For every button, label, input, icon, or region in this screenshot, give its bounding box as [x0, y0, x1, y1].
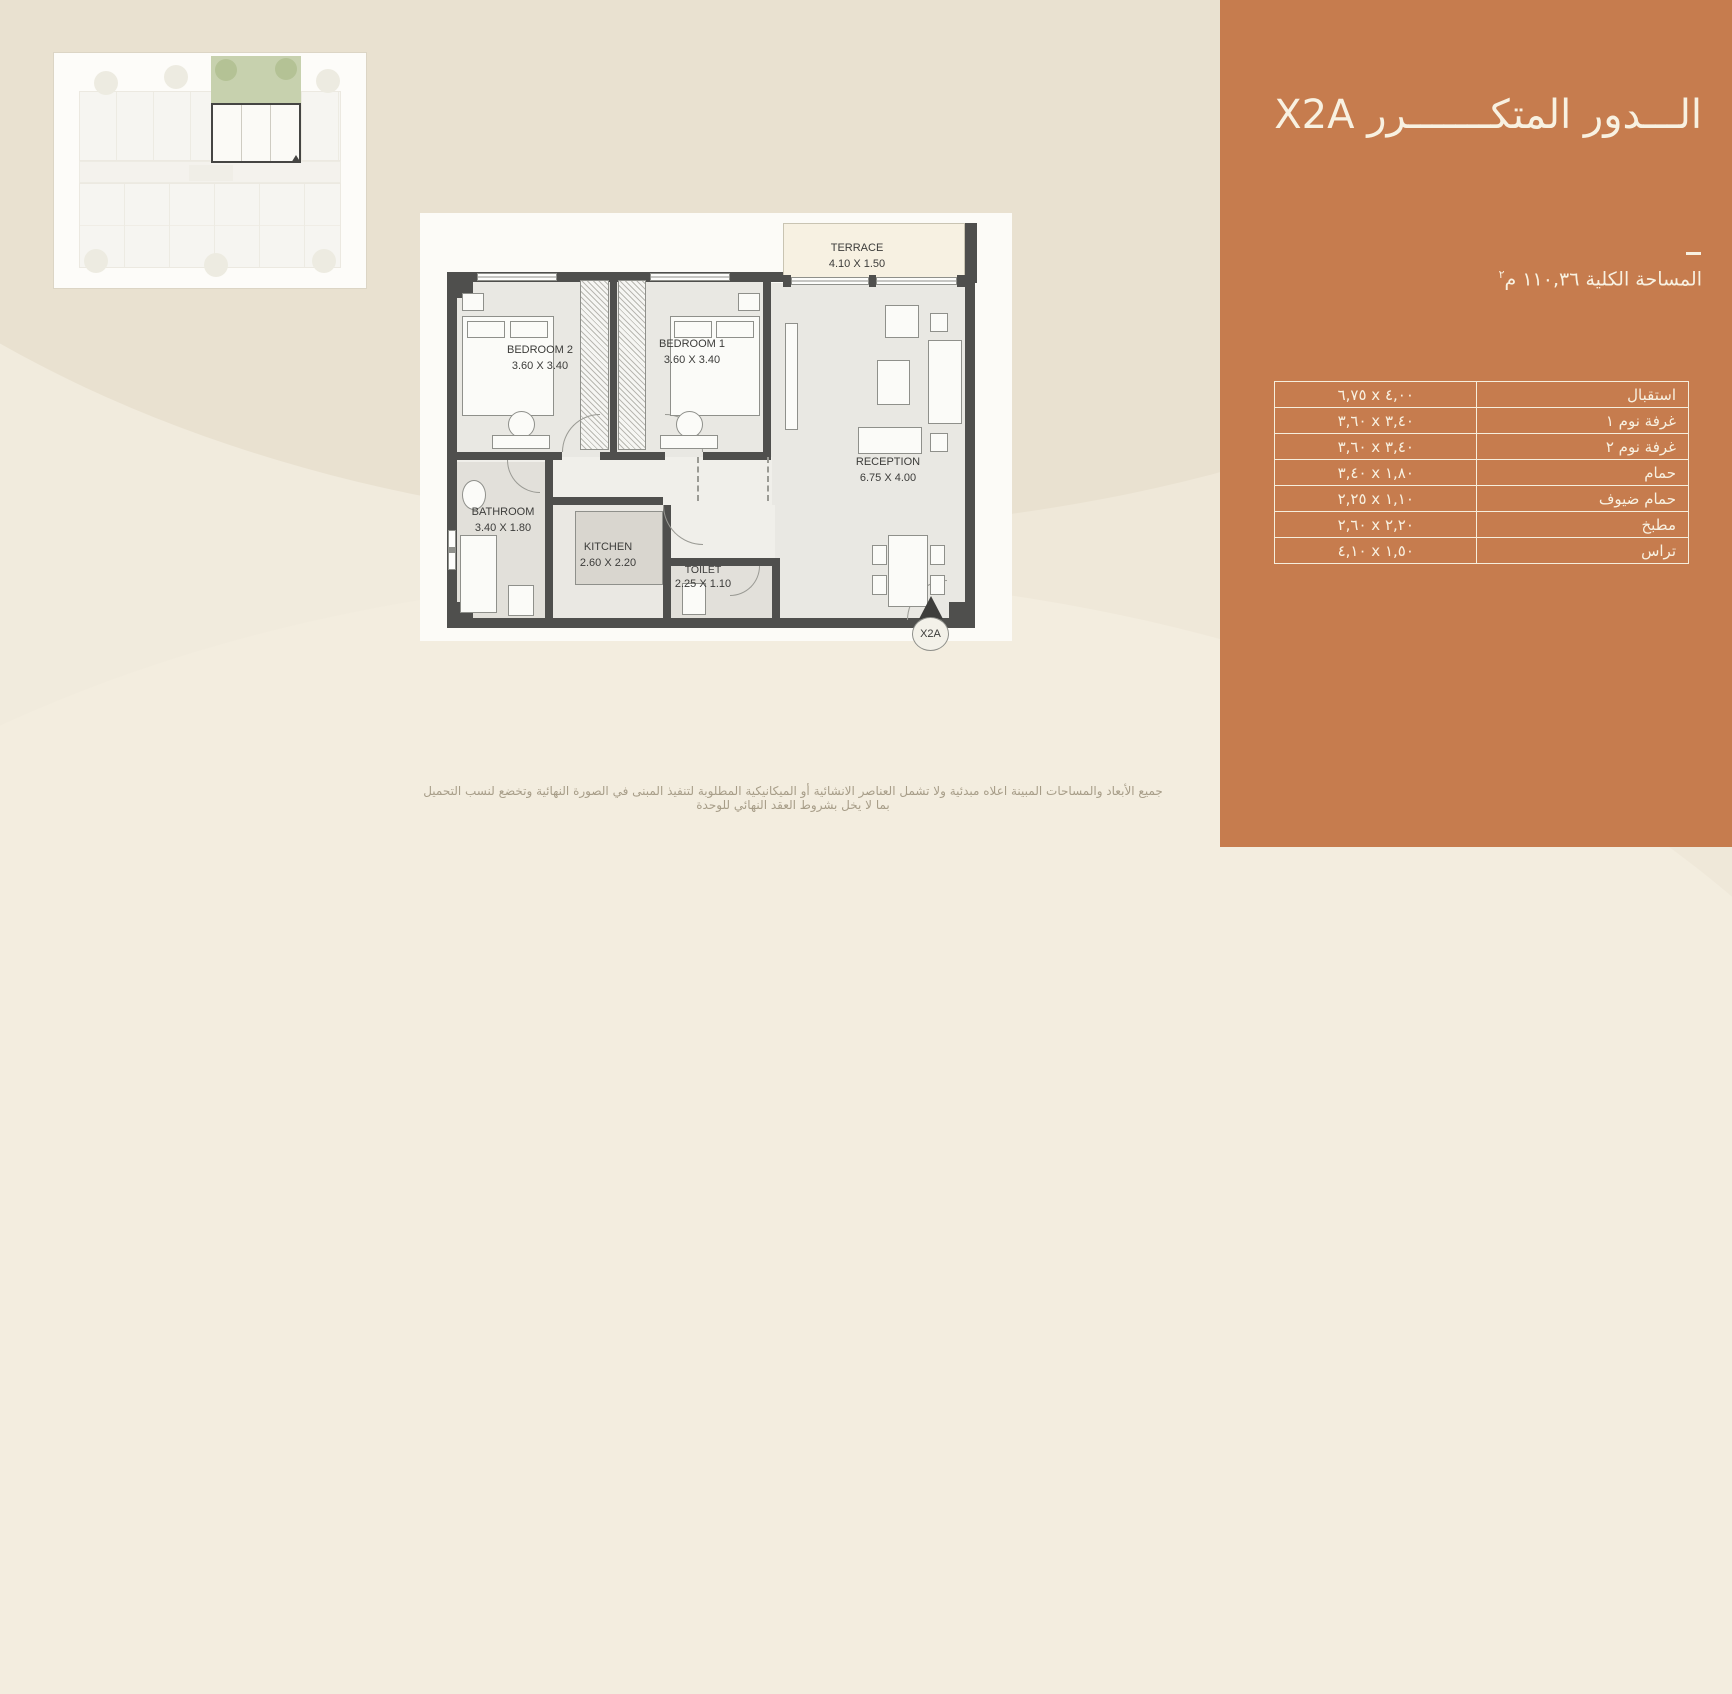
floorplan: TERRACE 4.10 X 1.50 BEDROOM 2 3.60 X 3.4… [420, 213, 1012, 641]
room-name: TERRACE [831, 242, 884, 254]
wall [703, 452, 771, 460]
pillow [716, 321, 754, 338]
room-dims-cell: ٣,٤٠ x ١,٨٠ [1275, 460, 1477, 486]
info-panel: الـــدور المتكـــــــرر X2A المساحة الكل… [1220, 0, 1732, 847]
wall [447, 272, 457, 628]
side-table [930, 313, 948, 332]
wall [447, 618, 975, 628]
window [791, 277, 869, 285]
room-name-cell: مطبخ [1477, 512, 1689, 538]
tree-icon [94, 71, 118, 95]
room-name-cell: حمام [1477, 460, 1689, 486]
tv-unit [785, 323, 798, 430]
wall [869, 275, 876, 287]
room-name-cell: تراس [1477, 538, 1689, 564]
side-table [930, 433, 948, 452]
room-dims-cell: ٣,٦٠ x ٣,٤٠ [1275, 434, 1477, 460]
bathtub [460, 535, 497, 613]
pillow [510, 321, 548, 338]
keyplan-highlight-unit [211, 103, 301, 163]
dining-chair [930, 575, 945, 595]
total-area-unit: م [1505, 268, 1517, 290]
entrance-marker-icon [919, 596, 943, 619]
keyplan-stair-core [189, 165, 233, 181]
wall-corner [949, 602, 975, 628]
wall [447, 452, 562, 460]
wall [957, 275, 965, 287]
nightstand [462, 293, 484, 311]
keyplan-faded-building [54, 53, 366, 288]
wall [763, 272, 771, 460]
desk [492, 435, 550, 449]
table-row: مطبخ ٢,٦٠ x ٢,٢٠ [1275, 512, 1689, 538]
room-dims: 2.60 X 2.20 [580, 557, 636, 569]
wall [610, 272, 617, 460]
wall [545, 460, 553, 618]
total-area-text: المساحة الكلية ١١٠,٣٦ م٢ [1499, 268, 1702, 290]
tree-icon [275, 58, 297, 80]
opening-dashed [697, 457, 699, 501]
room-name-cell: استقبال [1477, 382, 1689, 408]
tree-icon [316, 69, 340, 93]
pillow [467, 321, 505, 338]
room-label-reception: RECEPTION 6.75 X 4.00 [828, 455, 948, 487]
room-dims: 3.60 X 3.40 [664, 354, 720, 366]
nightstand [738, 293, 760, 311]
wall [965, 283, 975, 628]
keyplan-thumbnail [53, 52, 367, 289]
window [876, 277, 957, 285]
wall [553, 497, 663, 505]
dining-chair [872, 575, 887, 595]
window [650, 273, 730, 281]
table-row: حمام ٣,٤٠ x ١,٨٠ [1275, 460, 1689, 486]
table-row: غرفة نوم ٢ ٣,٦٠ x ٣,٤٠ [1275, 434, 1689, 460]
toilet-wc [508, 585, 534, 616]
total-area-value: ١١٠,٣٦ [1522, 268, 1579, 290]
room-dims: 2.25 X 1.10 [675, 578, 731, 590]
room-name: RECEPTION [856, 456, 920, 468]
room-name-cell: غرفة نوم ٢ [1477, 434, 1689, 460]
coffee-table [877, 360, 910, 405]
page-title: الـــدور المتكـــــــرر X2A [1240, 92, 1702, 138]
title-divider [1686, 252, 1701, 255]
keyplan-highlight-garden [211, 56, 301, 103]
room-name: BATHROOM [472, 506, 535, 518]
keyplan-unit-entrance-marker [291, 155, 301, 163]
armchair [885, 305, 919, 338]
tree-icon [204, 253, 228, 277]
room-dims-cell: ٤,١٠ x ١,٥٠ [1275, 538, 1477, 564]
room-name-cell: حمام ضيوف [1477, 486, 1689, 512]
room-dims-cell: ٣,٦٠ x ٣,٤٠ [1275, 408, 1477, 434]
window [477, 273, 557, 281]
room-label-bedroom1: BEDROOM 1 3.60 X 3.40 [632, 337, 752, 369]
brochure-page: { "panel": { "title_ar": "الـــدور المتك… [0, 0, 1732, 847]
room-dims: 3.40 X 1.80 [475, 522, 531, 534]
room-name: TOILET [685, 564, 722, 576]
room-label-bedroom2: BEDROOM 2 3.60 X 3.40 [480, 343, 600, 375]
room-dims-cell: ٦,٧٥ x ٤,٠٠ [1275, 382, 1477, 408]
opening-dashed [767, 457, 769, 501]
wall [772, 558, 780, 618]
table-row: تراس ٤,١٠ x ١,٥٠ [1275, 538, 1689, 564]
wall [783, 275, 791, 287]
room-name: BEDROOM 2 [507, 344, 573, 356]
desk [660, 435, 718, 449]
page-title-arabic: الـــدور المتكـــــــرر [1367, 92, 1702, 138]
tree-icon [312, 249, 336, 273]
keyplan-top-units [79, 91, 341, 161]
room-dims: 4.10 X 1.50 [829, 258, 885, 270]
sofa [928, 340, 962, 424]
table-row: استقبال ٦,٧٥ x ٤,٠٠ [1275, 382, 1689, 408]
chair [676, 411, 703, 438]
tree-icon [215, 59, 237, 81]
room-label-bathroom: BATHROOM 3.40 X 1.80 [443, 505, 563, 537]
chair [508, 411, 535, 438]
room-dims: 6.75 X 4.00 [860, 472, 916, 484]
room-dims: 3.60 X 3.40 [512, 360, 568, 372]
dining-chair [872, 545, 887, 565]
tree-icon [84, 249, 108, 273]
room-name: BEDROOM 1 [659, 338, 725, 350]
room-label-toilet: TOILET 2.25 X 1.10 [644, 563, 762, 592]
unit-marker-badge: X2A [912, 617, 949, 651]
room-label-terrace: TERRACE 4.10 X 1.50 [743, 241, 971, 273]
table-row: غرفة نوم ١ ٣,٦٠ x ٣,٤٠ [1275, 408, 1689, 434]
table-row: حمام ضيوف ٢,٢٥ x ١,١٠ [1275, 486, 1689, 512]
tree-icon [164, 65, 188, 89]
loveseat [858, 427, 922, 454]
page-title-code: X2A [1274, 92, 1354, 138]
room-name-cell: غرفة نوم ١ [1477, 408, 1689, 434]
room-dims-cell: ٢,٦٠ x ٢,٢٠ [1275, 512, 1477, 538]
room-dims-cell: ٢,٢٥ x ١,١٠ [1275, 486, 1477, 512]
room-dimensions-table: استقبال ٦,٧٥ x ٤,٠٠ غرفة نوم ١ ٣,٦٠ x ٣,… [1274, 381, 1689, 564]
total-area-label: المساحة الكلية [1585, 268, 1702, 290]
pillow [674, 321, 712, 338]
room-name: KITCHEN [584, 541, 632, 553]
disclaimer-text: جميع الأبعاد والمساحات المبينة اعلاه مبد… [420, 784, 1166, 812]
dining-chair [930, 545, 945, 565]
